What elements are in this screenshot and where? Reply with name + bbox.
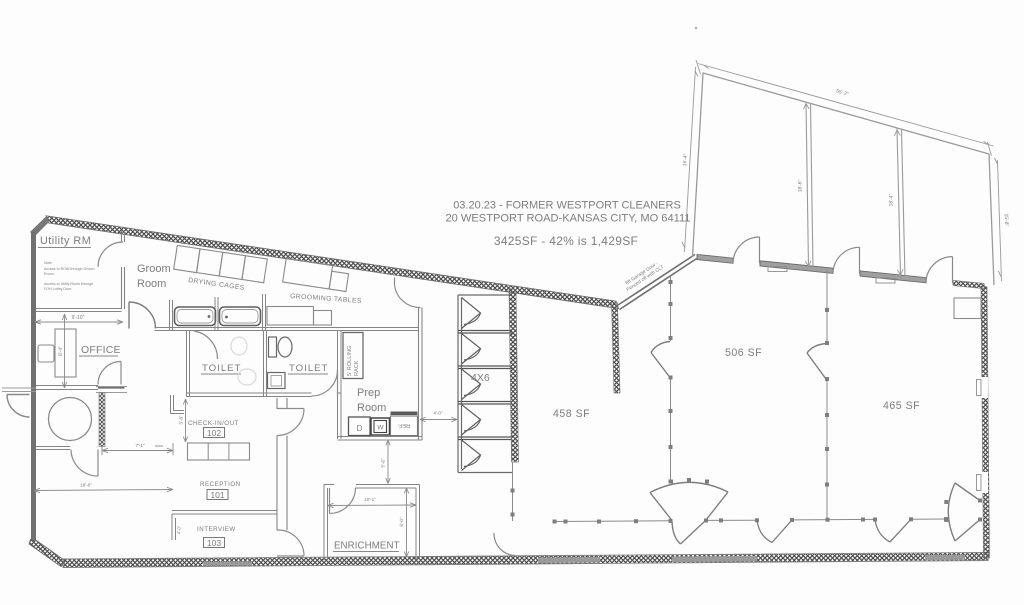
svg-text:FOH Lobby Door.: FOH Lobby Door. — [44, 287, 72, 291]
svg-text:TOILET: TOILET — [202, 363, 241, 374]
svg-text:6'-0": 6'-0" — [399, 517, 404, 527]
svg-text:03.20.23 - FORMER WESTPORT CLE: 03.20.23 - FORMER WESTPORT CLEANERS — [453, 200, 681, 212]
svg-text:Access to Utility Room through: Access to Utility Room through — [44, 282, 93, 286]
svg-text:15'-8": 15'-8" — [1003, 213, 1009, 226]
svg-text:GROOMING TABLES: GROOMING TABLES — [290, 293, 362, 305]
svg-text:9'-10": 9'-10" — [72, 315, 85, 321]
svg-text:RACK: RACK — [354, 360, 360, 376]
svg-text:D: D — [357, 424, 363, 433]
svg-text:103: 103 — [207, 538, 222, 548]
svg-text:INTERVIEW: INTERVIEW — [197, 526, 236, 533]
svg-text:101: 101 — [210, 490, 225, 500]
svg-text:CHECK-IN/OUT: CHECK-IN/OUT — [188, 420, 239, 427]
svg-text:18'-6": 18'-6" — [797, 179, 803, 192]
svg-text:TOILET: TOILET — [289, 363, 328, 374]
svg-text:Access to ROW through Groom: Access to ROW through Groom — [44, 267, 95, 271]
svg-text:Prep: Prep — [357, 387, 380, 399]
svg-text:Room: Room — [357, 402, 386, 414]
svg-text:REF.: REF. — [397, 422, 410, 428]
svg-text:3425SF - 42% is 1,429SF: 3425SF - 42% is 1,429SF — [494, 234, 638, 248]
svg-text:458 SF: 458 SF — [553, 408, 590, 420]
svg-text:4'-0": 4'-0" — [176, 525, 181, 534]
svg-text:18'-4": 18'-4" — [888, 193, 894, 206]
svg-text:8'-4": 8'-4" — [58, 346, 64, 356]
svg-text:RECEPTION: RECEPTION — [200, 481, 241, 488]
svg-text:5' ROLLING: 5' ROLLING — [347, 346, 353, 376]
svg-text:Groom: Groom — [137, 263, 171, 275]
svg-text:4'-0": 4'-0" — [433, 411, 443, 416]
svg-text:ENRICHMENT: ENRICHMENT — [334, 541, 400, 552]
svg-text:Utility RM: Utility RM — [40, 235, 91, 247]
svg-text:4X6: 4X6 — [471, 372, 490, 384]
svg-text:506 SF: 506 SF — [725, 347, 762, 359]
svg-text:DRYING CAGES: DRYING CAGES — [188, 277, 245, 292]
svg-text:465 SF: 465 SF — [883, 400, 920, 412]
svg-text:5'-6": 5'-6" — [380, 458, 385, 468]
svg-text:Room.: Room. — [44, 272, 55, 276]
svg-text:7'-1": 7'-1" — [135, 443, 145, 448]
svg-text:16'-4": 16'-4" — [682, 153, 689, 166]
svg-text:W: W — [377, 425, 384, 432]
svg-text:Note:: Note: — [44, 261, 53, 265]
svg-text:18'-8": 18'-8" — [80, 483, 92, 488]
svg-text:OFFICE: OFFICE — [81, 344, 121, 356]
svg-text:55'-2": 55'-2" — [835, 88, 849, 97]
svg-text:Room: Room — [137, 278, 166, 290]
svg-text:102: 102 — [207, 428, 222, 438]
svg-text:3'-8": 3'-8" — [178, 415, 183, 425]
svg-text:10'-1": 10'-1" — [364, 497, 376, 502]
svg-text:20 WESTPORT ROAD-KANSAS CITY,: 20 WESTPORT ROAD-KANSAS CITY, MO 64111 — [446, 213, 691, 225]
